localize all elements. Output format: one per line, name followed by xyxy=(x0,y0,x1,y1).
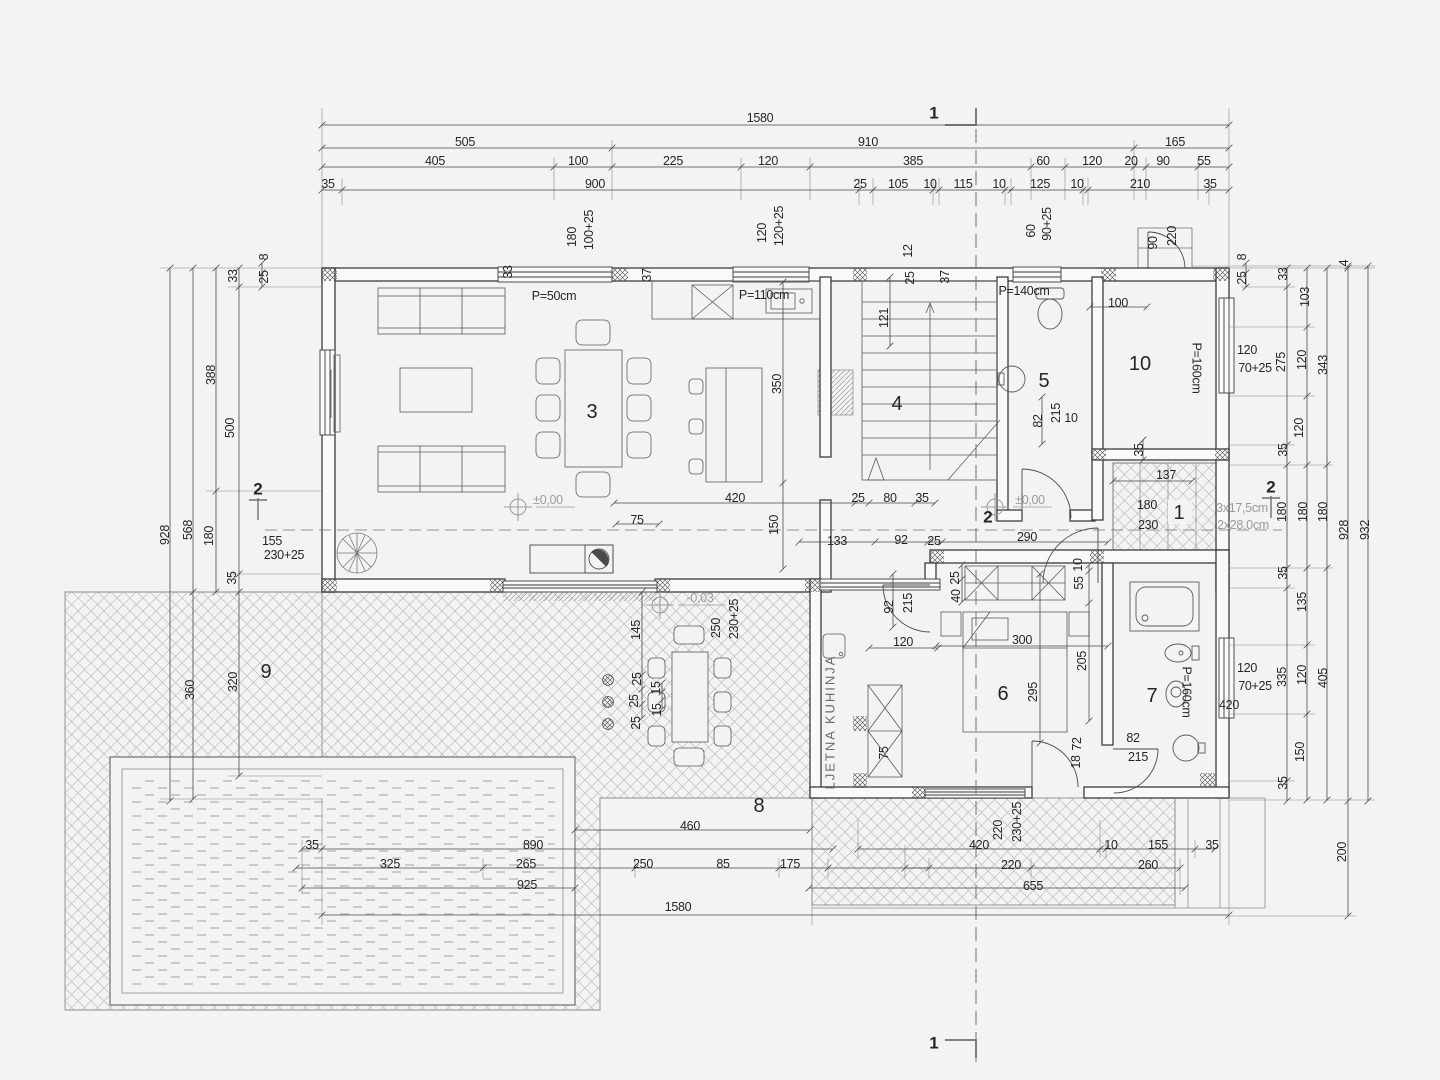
bed xyxy=(963,612,1067,732)
entry-canopy xyxy=(1138,228,1192,268)
staircase xyxy=(862,281,1000,480)
living-room-furniture xyxy=(331,288,651,497)
outdoor-table xyxy=(672,652,708,742)
floor-plan-page: 1580505910165405100225120385601202090553… xyxy=(0,0,1440,1080)
kitchen xyxy=(652,281,820,482)
bathroom-fixtures xyxy=(1130,582,1205,761)
door-sill-hatch xyxy=(503,592,657,601)
terrace-strip-south xyxy=(812,798,1175,905)
floor-plan-drawing xyxy=(0,0,1440,1080)
plant xyxy=(337,533,377,573)
kitchen-island xyxy=(706,368,762,482)
dining-table xyxy=(565,350,622,467)
summer-kitchen xyxy=(823,634,902,777)
fireplace xyxy=(530,545,613,573)
bedroom-furniture xyxy=(941,566,1089,732)
pool xyxy=(110,757,575,1005)
coffee-table xyxy=(400,368,472,412)
